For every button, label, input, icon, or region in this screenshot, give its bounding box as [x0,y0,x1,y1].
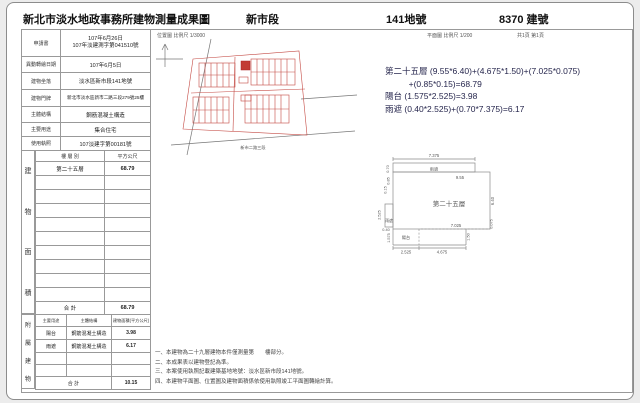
dim-lower-width: 7.025 [451,223,462,228]
table-row [36,260,151,274]
canopy-left-outline [385,204,393,227]
building-number: 8370 建號 [499,11,549,27]
document-page: 新北市淡水地政事務所建物測量成果圖 新市段 141地號 8370 建號 位置圖 … [6,2,634,400]
empty-cell [36,274,105,288]
empty-cell [67,353,112,365]
computation-line: 第二十五層 (9.55*6.40)+(4.675*1.50)+(7.025*0.… [385,65,580,78]
info-value: 107年6月5日 [61,57,151,73]
table-row [36,190,151,204]
building-area-side-label: 建 物 面 積 [21,150,35,314]
empty-cell [36,232,105,246]
dim-right-height: 6.40 [490,196,495,205]
info-value: 淡水區新市段141地號 [61,73,151,90]
building-info-table: 申請書 107年6月26日 107年淡建測字第041510號 異動轉繪日期 10… [21,29,151,151]
table-row [36,365,151,377]
side-label-char: 附 [25,320,31,329]
empty-cell [36,365,67,377]
floor-plan: 7.375 0.70 雨遮 9.55 第二十五層 6.40 0.075 0.85… [361,149,516,257]
canopy-left-label: 雨遮 [385,218,393,223]
empty-cell [36,176,105,190]
annex-area-value: 6.17 [112,340,151,353]
table-row [36,204,151,218]
page-count-label: 共1頁 第1頁 [517,32,544,39]
annex-building-table: 主要用途 主體結構 建物面積(平方公尺) 陽台 鋼筋混凝土構造 3.98 雨遮 … [35,314,151,390]
notes-block: 一、本建物為二十九層建物本件僅測量第 樓部分。 二、本成果表以建物登記為準。 三… [155,349,337,387]
table-row [36,288,151,302]
dim-left-a: 0.85 [387,177,391,184]
balcony-label: 陽台 [402,234,410,241]
info-label: 異動轉繪日期 [22,57,61,73]
table-row: 雨遮 鋼筋混凝土構造 6.17 [36,340,151,353]
empty-cell [112,353,151,365]
dim-balcony-height: 1.575 [387,233,391,243]
empty-cell [105,260,151,274]
column-header-floor: 樓 層 別 [36,151,105,162]
table-row [36,232,151,246]
note-line: 四、本建物平面圖、位置圖及建物面積係依使用執照竣工平面圖轉繪計算。 [155,378,337,388]
empty-cell [105,274,151,288]
cadastral-parcels [183,51,307,135]
dim-left-b: 0.15 [384,186,388,193]
empty-cell [105,246,151,260]
computation-line: +(0.85*0.15)=68.79 [385,78,580,91]
table-row [36,353,151,365]
info-value: 107淡建字第00181號 [61,137,151,151]
table-row: 陽台 鋼筋混凝土構造 3.98 [36,327,151,340]
annex-use: 陽台 [36,327,67,340]
computation-line: 陽台 (1.575*2.525)=3.98 [385,90,580,103]
table-row: 主要用途 集合住宅 [22,123,151,137]
empty-cell [36,353,67,365]
info-label: 申請書 [22,30,61,57]
location-map: 新市二路三段 [153,37,357,155]
canopy-top-label: 雨遮 [430,166,438,173]
note-line: 二、本成果表以建物登記為準。 [155,359,337,369]
table-row [36,246,151,260]
empty-cell [67,365,112,377]
empty-cell [105,176,151,190]
land-section: 新市段 [246,11,279,27]
area-computation: 第二十五層 (9.55*6.40)+(4.675*1.50)+(7.025*0.… [385,65,580,115]
floor-plan-scale-label: 平面圖 比例尺 1/200 [427,32,472,39]
side-label-char: 屬 [25,338,31,347]
table-row: 建物門牌 新北市淡水區新市二路三段279號25樓 [22,90,151,107]
info-label: 建物門牌 [22,90,61,107]
table-row: 建物坐落 淡水區新市段141地號 [22,73,151,90]
table-row: 使用執照 107淡建字第00181號 [22,137,151,151]
table-header-row: 主要用途 主體結構 建物面積(平方公尺) [36,315,151,327]
subject-building-highlight [241,61,250,70]
column-header-structure: 主體結構 [67,315,112,327]
dim-top-width: 7.375 [429,153,440,158]
total-annex-value: 10.15 [112,377,151,390]
empty-cell [36,288,105,302]
table-header-row: 樓 層 別 平方公尺 [36,151,151,162]
total-area-value: 68.79 [105,302,151,315]
page-title: 新北市淡水地政事務所建物測量成果圖 [23,11,210,27]
info-label: 主要用途 [22,123,61,137]
info-value: 集合住宅 [61,123,151,137]
side-label-char: 物 [25,207,32,217]
annex-use: 雨遮 [36,340,67,353]
application-doc-number: 107年淡建測字第041510號 [61,43,150,50]
column-header-area: 平方公尺 [105,151,151,162]
info-value: 107年6月26日 107年淡建測字第041510號 [61,30,151,57]
annex-structure: 鋼筋混凝土構造 [67,340,112,353]
computation-line: 雨遮 (0.40*2.525)+(0.70*7.375)=6.17 [385,103,580,116]
table-row: 第二十五層 68.79 [36,162,151,176]
column-header-use: 主要用途 [36,315,67,327]
room-label: 第二十五層 [433,199,466,208]
dim-canopy-left-height: 2.525 [378,210,382,220]
empty-cell [105,288,151,302]
annex-area-value: 3.98 [112,327,151,340]
table-row [36,218,151,232]
table-row: 申請書 107年6月26日 107年淡建測字第041510號 [22,30,151,57]
street-label: 新市二路三段 [240,144,266,151]
dim-bottom-height: 1.50 [467,233,471,240]
land-number: 141地號 [386,11,426,27]
dim-balcony-offset: 0.40 [382,228,389,232]
side-label-char: 積 [25,288,32,298]
column-header-annex-area: 建物面積(平方公尺) [112,315,151,327]
side-label-char: 建 [25,356,31,365]
table-total-row: 合 計 10.15 [36,377,151,390]
table-row [36,176,151,190]
annex-structure: 鋼筋混凝土構造 [67,327,112,340]
dim-inner-width: 9.55 [456,175,465,180]
info-label: 建物坐落 [22,73,61,90]
info-label: 使用執照 [22,137,61,151]
north-arrow-icon [156,44,183,67]
dim-balcony-width: 2.525 [401,250,412,255]
total-label: 合 計 [36,302,105,315]
table-row [36,274,151,288]
empty-cell [36,260,105,274]
table-row: 異動轉繪日期 107年6月5日 [22,57,151,73]
table-total-row: 合 計 68.79 [36,302,151,315]
floor-name: 第二十五層 [36,162,105,176]
empty-cell [105,232,151,246]
empty-cell [36,204,105,218]
floor-area-value: 68.79 [105,162,151,176]
empty-cell [105,218,151,232]
empty-cell [36,218,105,232]
info-value: 鋼筋混凝土構造 [61,107,151,123]
side-label-char: 建 [25,166,32,176]
note-line: 一、本建物為二十九層建物本件僅測量第 樓部分。 [155,349,337,359]
dim-right-step: 0.075 [490,219,494,229]
floor-area-table: 樓 層 別 平方公尺 第二十五層 68.79 合 計 68.79 [35,150,151,315]
empty-cell [36,246,105,260]
side-label-char: 面 [25,247,32,257]
empty-cell [112,365,151,377]
empty-cell [105,204,151,218]
application-date: 107年6月26日 [61,36,150,43]
annex-side-label: 附 屬 建 物 [21,314,35,389]
dim-canopy-height: 0.70 [386,165,390,172]
dim-bottom-width: 4.675 [437,250,448,255]
info-value: 新北市淡水區新市二路三段279號25樓 [61,90,151,107]
note-line: 三、本案使用執照記載建築基地地號：淡水區新市段141地號。 [155,368,337,378]
side-label-char: 物 [25,374,31,383]
info-label: 主體結構 [22,107,61,123]
total-label: 合 計 [36,377,112,390]
empty-cell [36,190,105,204]
table-row: 主體結構 鋼筋混凝土構造 [22,107,151,123]
empty-cell [105,190,151,204]
